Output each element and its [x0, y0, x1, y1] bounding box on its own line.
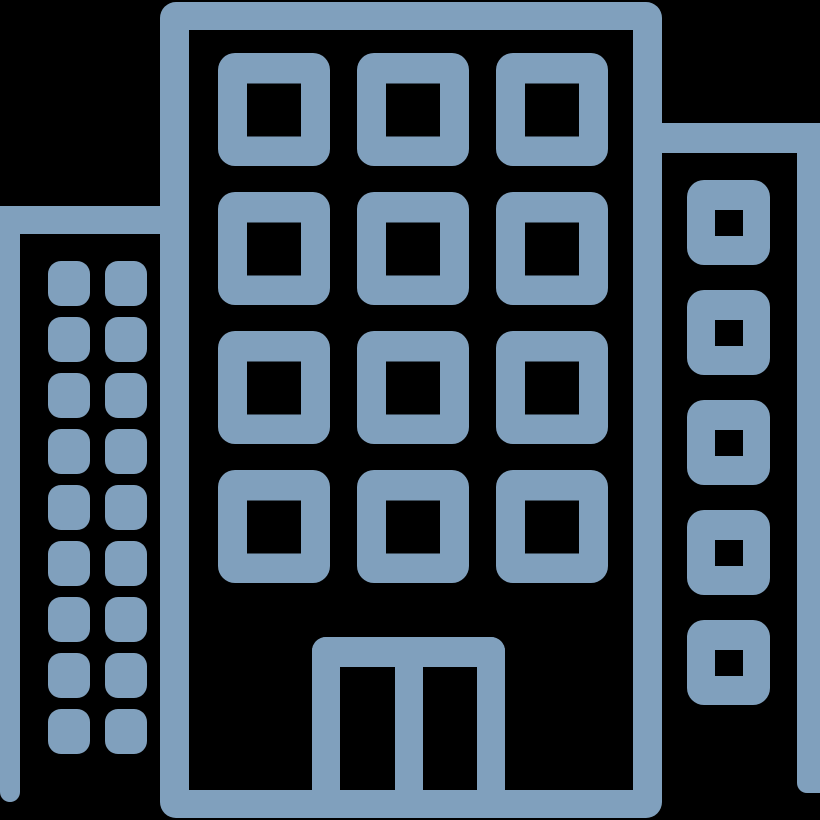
left-building-window — [48, 317, 90, 362]
right-building-window — [687, 400, 770, 485]
center-building-windows — [218, 53, 608, 583]
left-building-roof — [0, 206, 176, 234]
left-building-window — [105, 653, 147, 698]
right-building-window — [687, 290, 770, 375]
buildings-icon — [0, 0, 820, 820]
left-building-window — [48, 485, 90, 530]
window-pane-hole — [247, 222, 301, 275]
window-pane-hole — [715, 210, 743, 236]
right-building-window — [687, 510, 770, 595]
center-building-window — [357, 192, 469, 305]
window-pane-hole — [525, 83, 579, 136]
window-pane-hole — [386, 361, 440, 414]
center-building-window — [218, 470, 330, 583]
window-pane-hole — [715, 650, 743, 676]
window-pane-hole — [247, 361, 301, 414]
center-building-window — [496, 331, 608, 444]
right-building-wall — [797, 123, 820, 793]
window-pane-hole — [247, 500, 301, 553]
window-pane-hole — [715, 320, 743, 346]
window-pane-hole — [525, 361, 579, 414]
window-pane-hole — [247, 83, 301, 136]
left-building-wall — [0, 206, 20, 802]
window-pane-hole — [386, 83, 440, 136]
window-pane-hole — [715, 430, 743, 456]
center-building-window — [357, 331, 469, 444]
center-building-window — [496, 53, 608, 166]
center-building-window — [357, 53, 469, 166]
left-building-window — [48, 261, 90, 306]
right-building-roof — [648, 123, 820, 153]
left-building-window — [48, 597, 90, 642]
left-building-window — [105, 709, 147, 754]
center-building-window — [496, 192, 608, 305]
left-building-window — [48, 709, 90, 754]
right-building-window — [687, 620, 770, 705]
left-building-window — [105, 541, 147, 586]
left-building-window — [48, 429, 90, 474]
center-building-window — [218, 192, 330, 305]
left-building-window — [105, 429, 147, 474]
center-building-window — [357, 470, 469, 583]
left-building-window — [105, 317, 147, 362]
window-pane-hole — [386, 500, 440, 553]
window-pane-hole — [525, 222, 579, 275]
left-building-window — [105, 597, 147, 642]
window-pane-hole — [715, 540, 743, 566]
left-building-window — [105, 485, 147, 530]
left-building-window — [105, 261, 147, 306]
right-building-windows — [687, 180, 770, 705]
center-building-window — [496, 470, 608, 583]
left-building-window — [48, 373, 90, 418]
left-building-window — [105, 373, 147, 418]
left-building-window — [48, 653, 90, 698]
center-building-window — [218, 331, 330, 444]
left-building-windows — [48, 261, 147, 754]
center-building-window — [218, 53, 330, 166]
window-pane-hole — [386, 222, 440, 275]
window-pane-hole — [525, 500, 579, 553]
left-building-window — [48, 541, 90, 586]
right-building-window — [687, 180, 770, 265]
door-divider — [395, 662, 423, 790]
